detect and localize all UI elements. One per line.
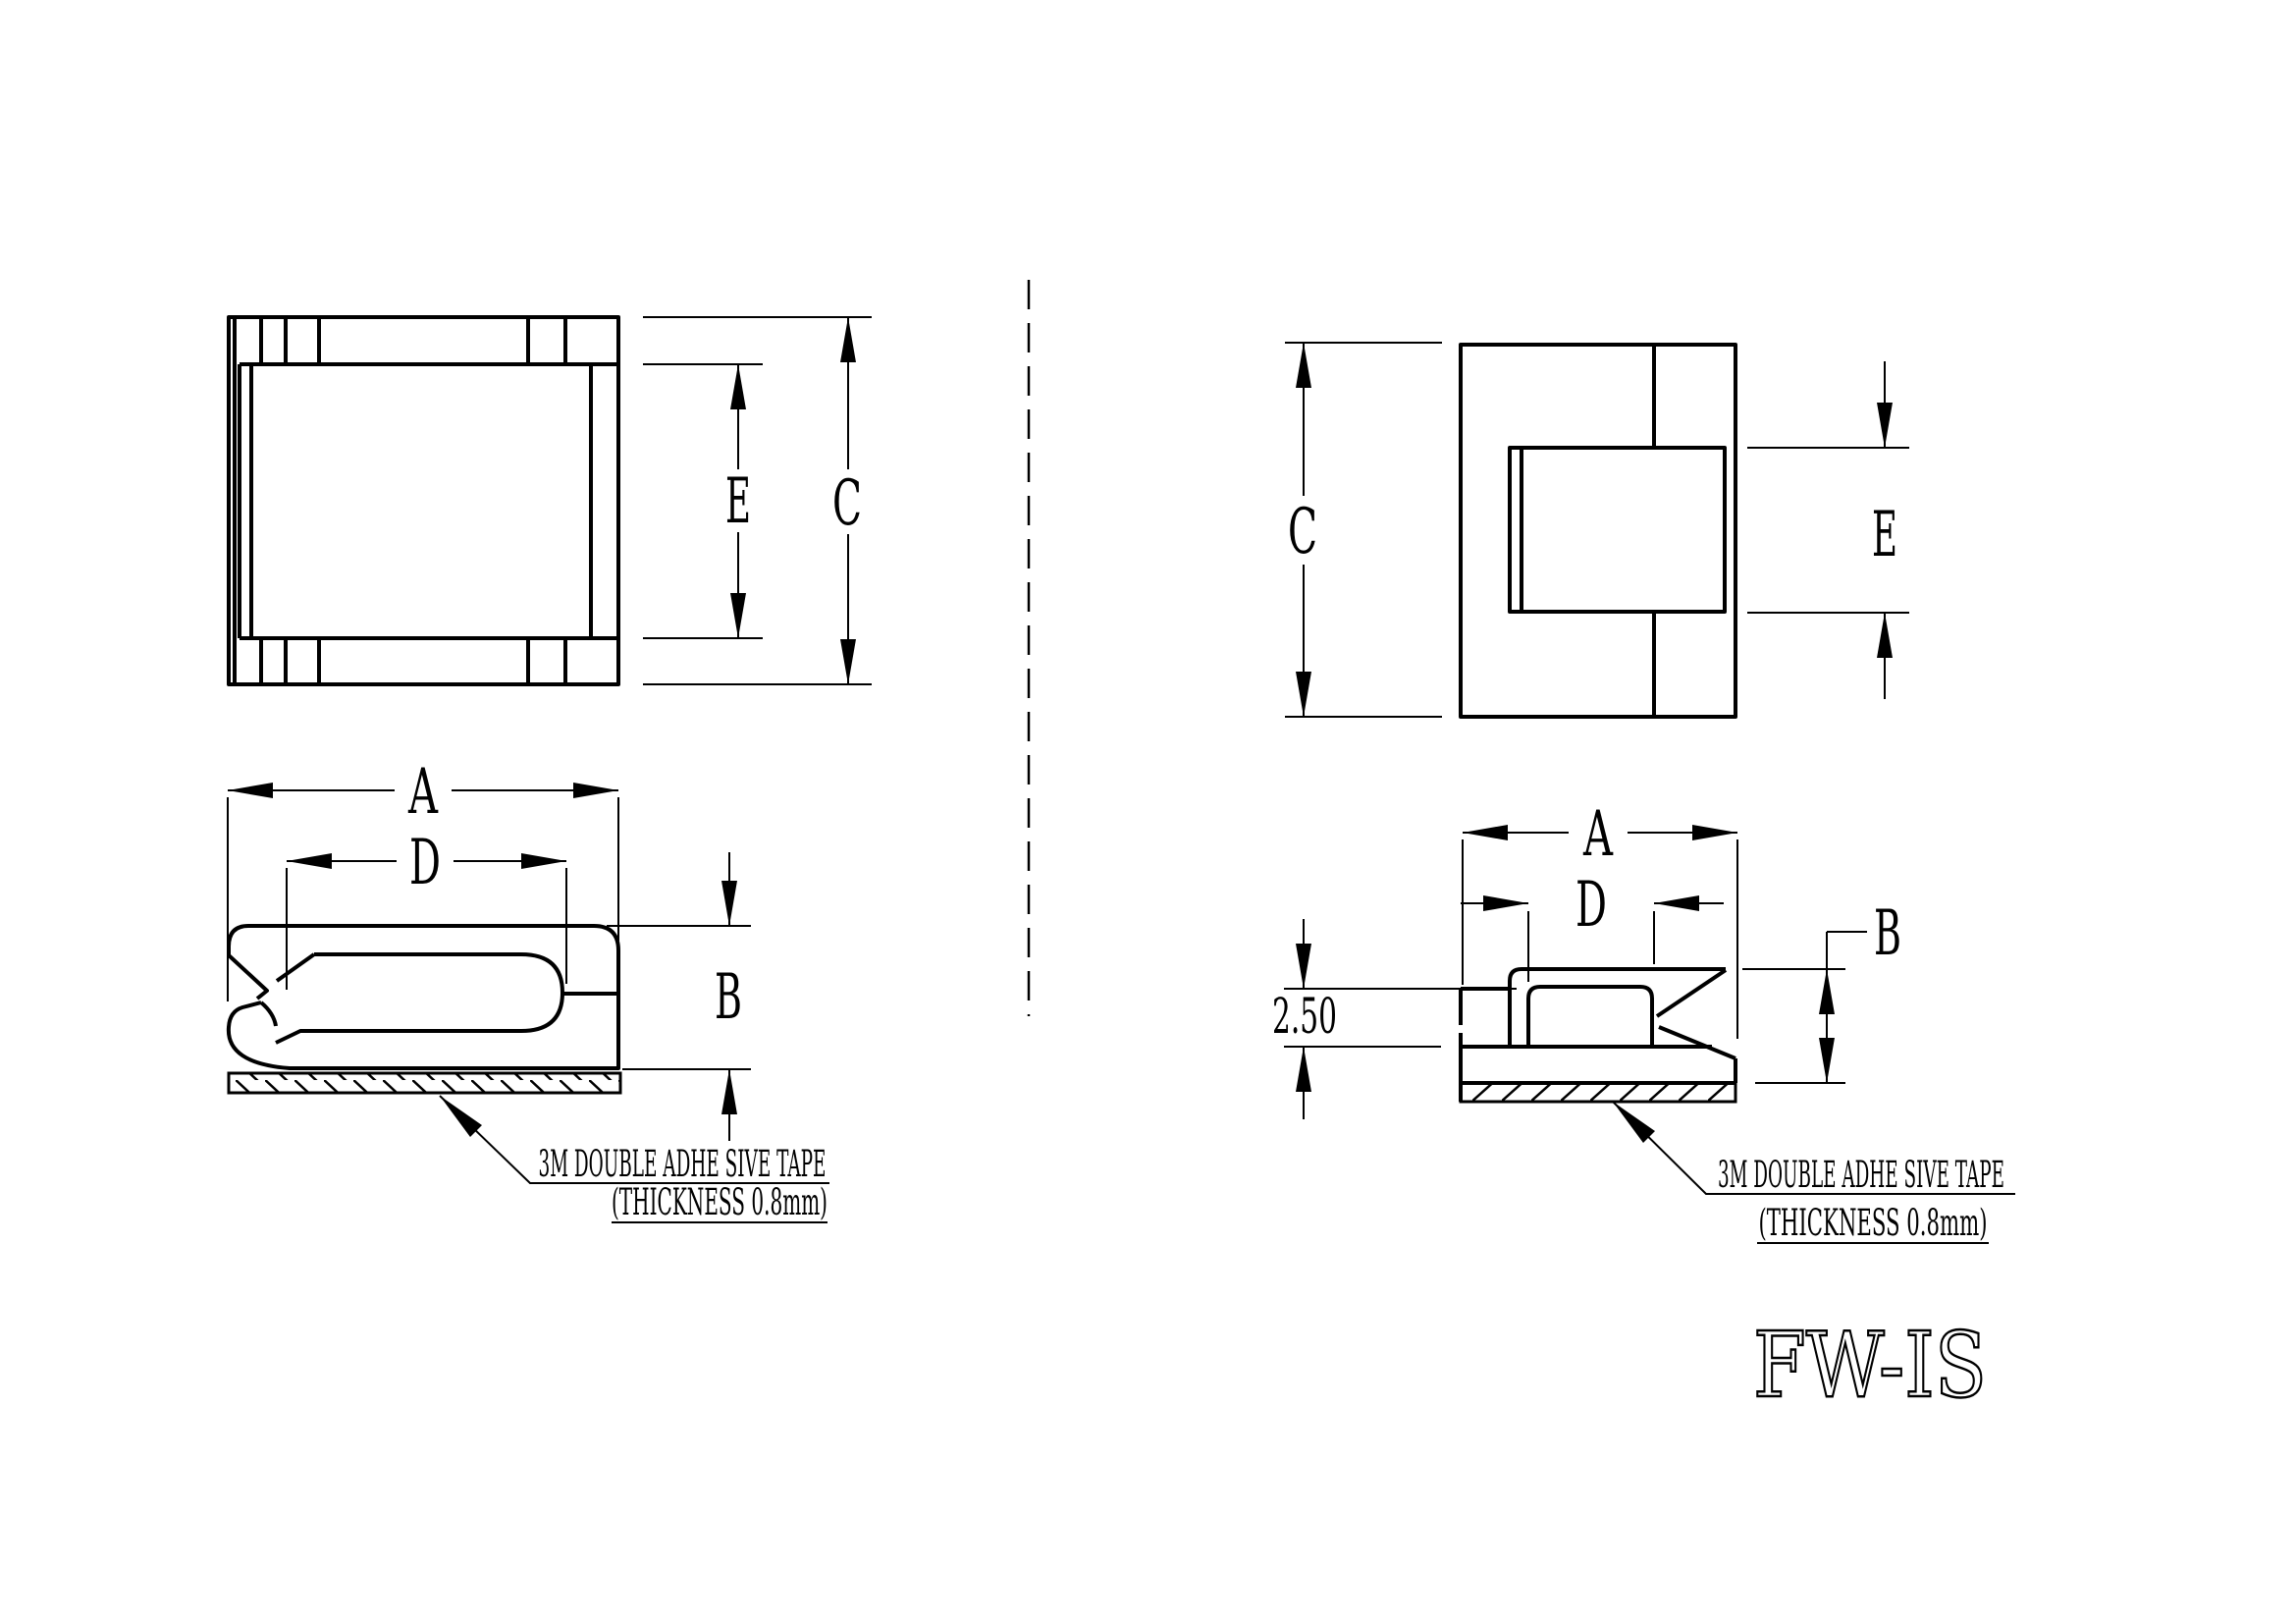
left-dim-A-label: A [407,756,438,829]
right-dim-250-label: 2.50 [1272,988,1337,1045]
right-dim-C: C [1285,343,1442,717]
left-dim-E-label: E [725,465,751,538]
left-dim-B: B [607,852,751,1141]
left-tape-note-line2: (THICKNESS 0.8mm) [612,1181,828,1223]
engineering-drawing: E C A D B [0,0,2296,1623]
left-tape-note-line1: 3M DOUBLE ADHE SIVE TAPE [539,1143,827,1185]
right-tape-note-line2: (THICKNESS 0.8mm) [1759,1202,1988,1244]
right-dim-A-label: A [1582,798,1613,871]
right-plan-view [1461,345,1735,717]
left-tape-note: 3M DOUBLE ADHE SIVE TAPE (THICKNESS 0.8m… [440,1096,829,1223]
right-dim-D-label: D [1575,869,1607,942]
drawing-sheet: E C A D B [0,0,2296,1623]
left-dim-B-label: B [715,961,742,1034]
left-plan-view [229,317,618,684]
right-dim-D: D [1461,869,1724,982]
part-number-text: FW-IS [1753,1313,1987,1418]
left-dim-C: C [643,317,872,684]
left-dim-D-label: D [409,827,441,899]
left-dim-C-label: C [832,467,862,540]
left-dim-D: D [287,827,566,990]
left-adhesive-tape [229,1073,620,1093]
right-dim-B-label: B [1874,897,1901,970]
right-dim-B: B [1742,897,1901,1083]
right-tape-note-line1: 3M DOUBLE ADHE SIVE TAPE [1718,1154,2004,1196]
right-tape-note: 3M DOUBLE ADHE SIVE TAPE (THICKNESS 0.8m… [1613,1102,2015,1244]
right-adhesive-tape [1461,1083,1735,1102]
right-dim-C-label: C [1288,496,1317,568]
right-dim-E: E [1747,361,1909,699]
part-number: FW-IS [1753,1313,1987,1418]
left-dim-E: E [643,364,763,638]
right-dim-E-label: E [1872,499,1897,571]
